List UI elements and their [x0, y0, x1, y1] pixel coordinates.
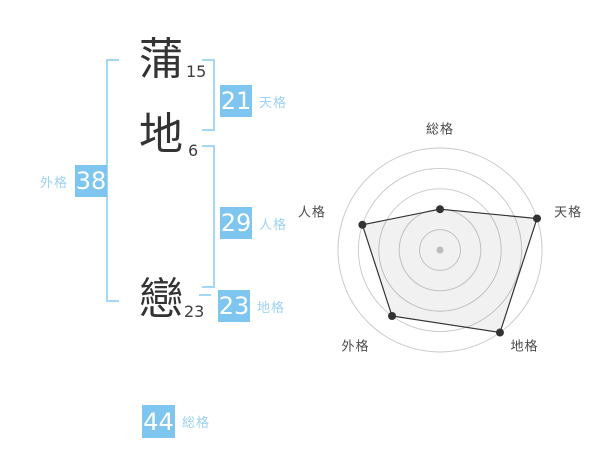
radar-center-dot: [437, 247, 444, 254]
chikaku-chip: 23 地格: [218, 290, 285, 322]
radar-vertex-dot: [388, 312, 396, 320]
jinkaku-label: 人格: [259, 214, 287, 233]
tenkaku-value: 21: [220, 85, 252, 117]
radar-axis-label: 総格: [426, 122, 454, 138]
gaikaku-value: 38: [75, 165, 107, 197]
radar-axis-label: 天格: [554, 204, 582, 220]
stroke-count-2: 6: [188, 141, 198, 160]
chikaku-connector-dash: [199, 294, 211, 296]
gaikaku-chip: 外格 38: [40, 165, 107, 197]
tenkaku-label: 天格: [259, 92, 287, 111]
name-char-1: 蒲: [136, 36, 186, 84]
radar-vertex-dot: [436, 205, 444, 213]
soukaku-chip: 44 総格: [142, 405, 210, 438]
soukaku-value: 44: [142, 405, 175, 438]
radar-axis-label: 人格: [298, 204, 326, 220]
gaikaku-bracket: [106, 59, 119, 302]
soukaku-label: 総格: [182, 412, 210, 431]
name-fortune-page: 蒲 地 戀 15 6 23 21 天格 29 人格 23 地格 外格 38 44…: [0, 0, 600, 470]
gaikaku-label: 外格: [40, 172, 68, 191]
radar-vertex-dot: [358, 221, 366, 229]
name-char-2: 地: [136, 111, 186, 159]
jinkaku-value: 29: [220, 207, 252, 239]
radar-vertex-dot: [496, 329, 504, 337]
chikaku-label: 地格: [257, 297, 285, 316]
jinkaku-bracket: [202, 145, 215, 288]
jinkaku-chip: 29 人格: [220, 207, 287, 239]
tenkaku-bracket: [202, 59, 215, 131]
chikaku-value: 23: [218, 290, 250, 322]
stroke-count-3: 23: [184, 302, 204, 321]
tenkaku-chip: 21 天格: [220, 85, 287, 117]
radar-axis-label: 外格: [341, 339, 369, 355]
radar-vertex-dot: [533, 214, 541, 222]
radar-axis-label: 地格: [511, 339, 539, 355]
radar-chart: 総格天格地格外格人格: [290, 115, 590, 365]
name-char-3: 戀: [136, 276, 186, 324]
